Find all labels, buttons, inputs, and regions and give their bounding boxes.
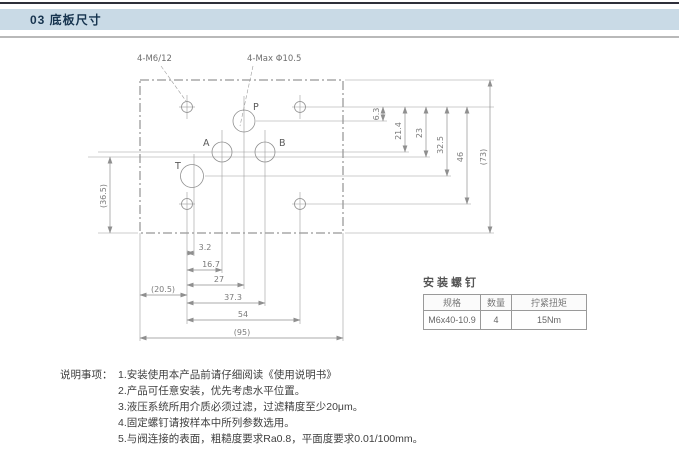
dim-37-3: 37.3: [224, 293, 242, 302]
screw-table-header-row: 规格 数量 拧紧扭矩: [424, 295, 587, 311]
dim-21-4: 21.4: [394, 122, 403, 140]
note-item-2: 2.产品可任意安装，优先考虑水平位置。: [118, 383, 305, 399]
dim-6-3: 6.3: [372, 108, 381, 121]
dim-46: 46: [456, 152, 465, 162]
port-label-p: P: [253, 102, 259, 113]
callout-leaders: [161, 66, 253, 126]
note-item-5: 5.与阀连接的表面，粗糙度要求Ra0.8，平面度要求0.01/100mm。: [118, 431, 423, 447]
port-label-t: T: [174, 161, 181, 172]
mounting-holes: [182, 102, 306, 210]
dim-27: 27: [214, 275, 224, 284]
note-item-1: 1.安装使用本产品前请仔细阅读《使用说明书》: [118, 367, 337, 383]
port-label-b: B: [279, 138, 286, 149]
cell-torque: 15Nm: [512, 311, 587, 330]
dim-23: 23: [415, 128, 424, 138]
notes-label: 说明事项：: [60, 367, 118, 383]
dim-32-5: 32.5: [436, 136, 445, 154]
port-label-a: A: [203, 138, 210, 149]
notes-section: 说明事项： 1.安装使用本产品前请仔细阅读《使用说明书》 2.产品可任意安装，优…: [60, 367, 423, 447]
dim-20-5: (20.5): [151, 285, 175, 294]
table-row: M6x40-10.9 4 15Nm: [424, 311, 587, 330]
cell-spec: M6x40-10.9: [424, 311, 481, 330]
col-header-torque: 拧紧扭矩: [512, 295, 587, 311]
col-header-spec: 规格: [424, 295, 481, 311]
dim-3-2: 3.2: [199, 243, 212, 252]
dim-95: (95): [234, 328, 250, 337]
dim-36-5: (36.5): [99, 184, 108, 208]
screw-table: 规格 数量 拧紧扭矩 M6x40-10.9 4 15Nm: [423, 294, 587, 330]
dim-73: (73): [479, 149, 488, 165]
callout-screw-holes: 4-M6/12: [137, 54, 172, 64]
callout-max-port: 4-Max Φ10.5: [247, 54, 301, 64]
note-item-4: 4.固定螺钉请按样本中所列参数选用。: [118, 415, 295, 431]
screw-table-title: 安装螺钉: [423, 274, 479, 290]
dim-54: 54: [238, 310, 248, 319]
cell-qty: 4: [481, 311, 512, 330]
note-item-3: 3.液压系统所用介质必须过滤，过滤精度至少20μm。: [118, 399, 363, 415]
plate-outline: [140, 80, 343, 233]
col-header-qty: 数量: [481, 295, 512, 311]
dim-16-7: 16.7: [202, 260, 220, 269]
